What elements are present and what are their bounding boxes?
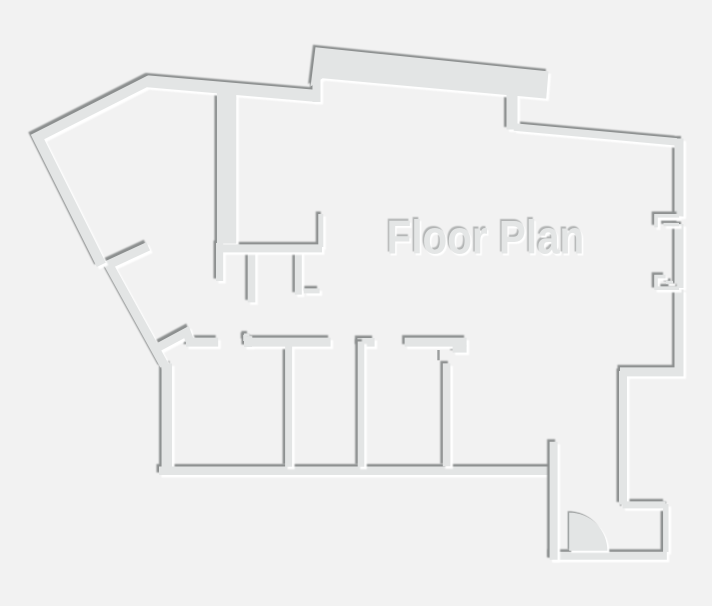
- svg-text:Floor Plan: Floor Plan: [387, 212, 585, 265]
